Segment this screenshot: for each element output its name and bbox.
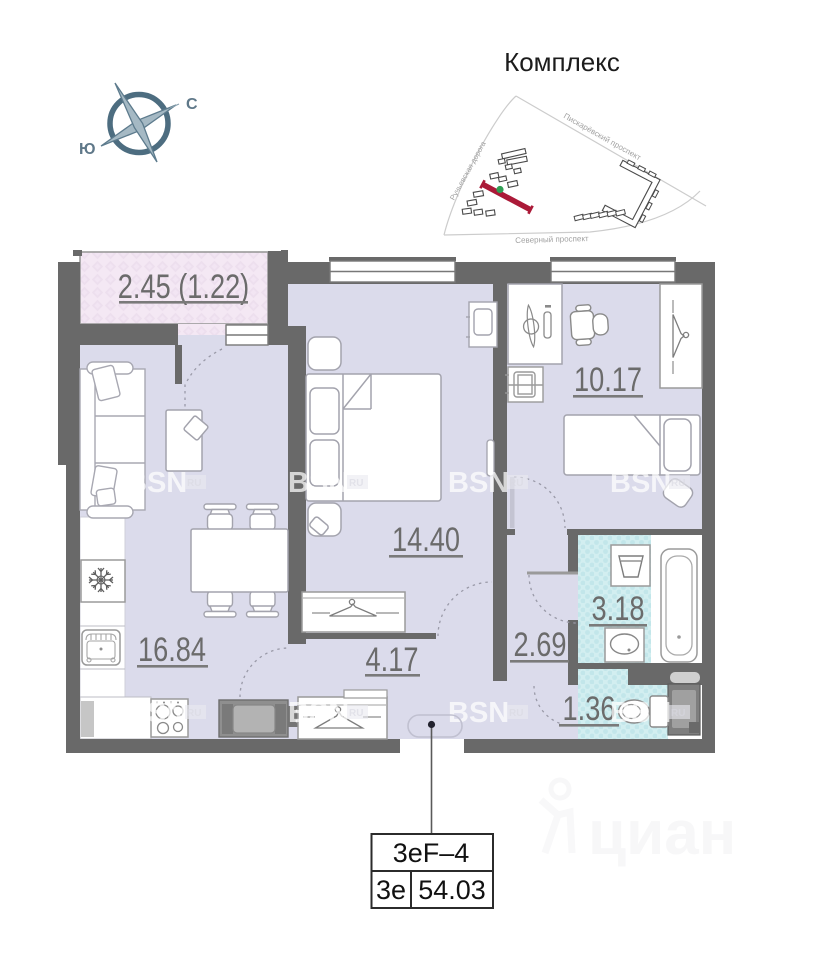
svg-text:RU: RU xyxy=(187,478,201,489)
svg-text:RU: RU xyxy=(509,708,523,719)
svg-text:BSN: BSN xyxy=(610,697,671,729)
svg-text:BSN: BSN xyxy=(126,467,187,499)
svg-text:3.18: 3.18 xyxy=(592,589,645,628)
svg-text:BSN: BSN xyxy=(786,467,814,499)
svg-text:10.17: 10.17 xyxy=(574,360,642,399)
svg-text:циан: циан xyxy=(588,799,736,868)
svg-text:RU: RU xyxy=(187,708,201,719)
svg-text:14.40: 14.40 xyxy=(392,520,460,559)
svg-text:BSN: BSN xyxy=(126,697,187,729)
svg-text:BSN: BSN xyxy=(448,697,509,729)
svg-text:С: С xyxy=(186,96,198,113)
svg-text:1.36: 1.36 xyxy=(563,689,616,728)
svg-text:RU: RU xyxy=(349,478,363,489)
svg-text:54.03: 54.03 xyxy=(418,875,486,905)
svg-text:16.84: 16.84 xyxy=(138,630,206,669)
svg-text:4.17: 4.17 xyxy=(366,640,419,679)
svg-text:RU: RU xyxy=(509,478,523,489)
svg-text:RU: RU xyxy=(349,708,363,719)
svg-text:RU: RU xyxy=(671,708,685,719)
svg-text:Пискарёвский проспект: Пискарёвский проспект xyxy=(562,111,643,162)
svg-text:Ю: Ю xyxy=(79,141,96,158)
svg-text:Комплекс: Комплекс xyxy=(504,47,620,77)
svg-text:2.45 (1.22): 2.45 (1.22) xyxy=(118,267,249,306)
svg-text:Северный проспект: Северный проспект xyxy=(515,234,589,245)
svg-text:BSN: BSN xyxy=(288,697,349,729)
svg-text:BSN: BSN xyxy=(610,467,671,499)
svg-text:BSN: BSN xyxy=(288,467,349,499)
svg-text:2.69: 2.69 xyxy=(514,625,567,664)
svg-text:3еF–4: 3еF–4 xyxy=(393,838,470,868)
svg-text:3е: 3е xyxy=(376,875,406,905)
svg-text:RU: RU xyxy=(671,478,685,489)
svg-text:BSN: BSN xyxy=(448,467,509,499)
